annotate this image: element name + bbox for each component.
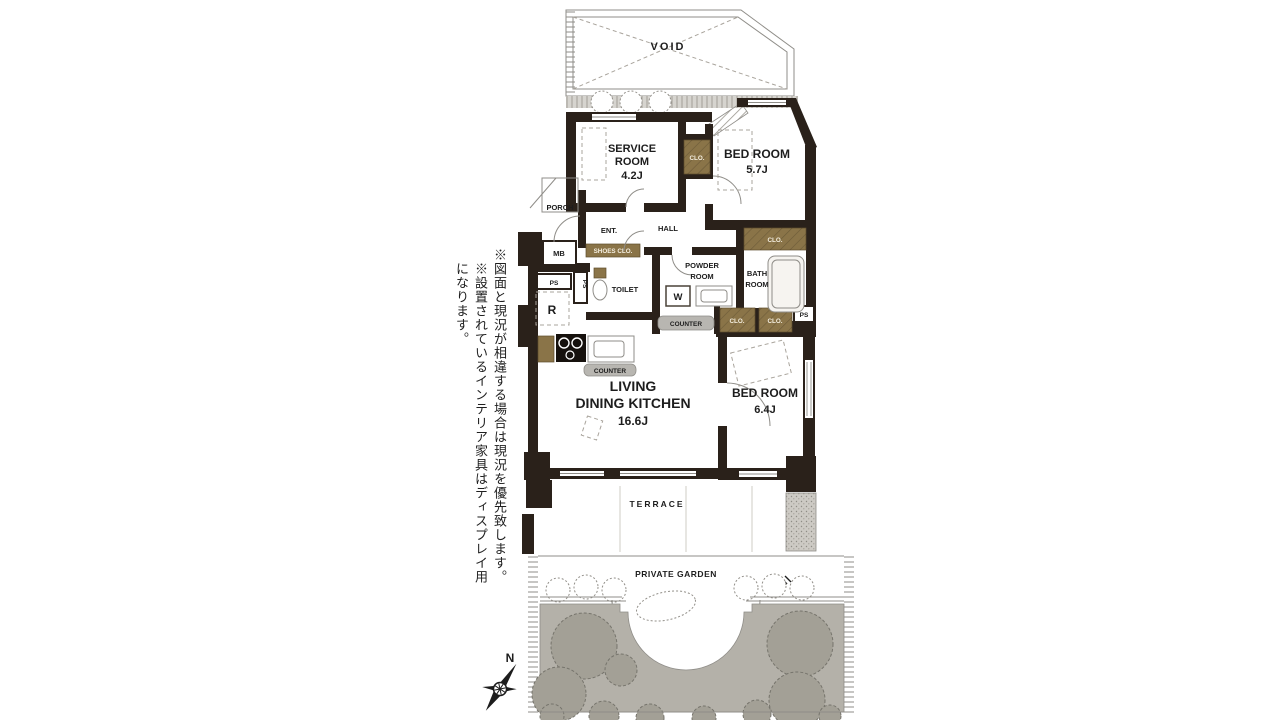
powder-room-label-2: ROOM — [690, 272, 713, 281]
refrigerator-label: R — [548, 303, 557, 317]
bath-room-label-2: ROOM — [745, 280, 768, 289]
wall-service-top — [566, 112, 712, 122]
wall-porch-right — [578, 190, 586, 248]
service-room-name-1: SERVICE — [608, 143, 656, 155]
wall-bed64-top — [716, 332, 816, 337]
ent-label: ENT. — [601, 226, 617, 235]
void-diagonal-2 — [573, 17, 738, 89]
wall-entry-block — [518, 232, 542, 266]
kitchen-stove — [556, 334, 586, 362]
disclaimer-notes: ※図面と現況が相違する場合は現況を優先致します。 ※設置されているインテリア家具… — [452, 248, 509, 588]
bath-tub — [768, 256, 804, 312]
counters: COUNTER COUNTER — [584, 316, 714, 376]
planter-bush — [591, 91, 613, 113]
private-garden-label: PRIVATE GARDEN — [635, 569, 717, 579]
planter-bush — [649, 91, 671, 113]
pipe-space-c-label: PS — [800, 312, 809, 319]
disclaimer-note-1: ※図面と現況が相違する場合は現況を優先致します。 — [490, 248, 509, 588]
wall-clo-divider — [755, 308, 759, 332]
void-area: VOID — [566, 10, 798, 113]
wall-powder-top-right — [692, 247, 736, 255]
bed-room-64-size: 6.4J — [754, 404, 775, 416]
terrace-label: TERRACE — [629, 499, 684, 509]
meter-box-label: MB — [553, 249, 565, 258]
service-room-size: 4.2J — [621, 170, 642, 182]
planter-bush — [620, 91, 642, 113]
disclaimer-note-2: ※設置されているインテリア家具はディスプレイ用になります。 — [452, 248, 490, 588]
garden-bush — [546, 578, 570, 602]
furniture-service — [582, 128, 606, 180]
bed-room-57-size: 5.7J — [746, 164, 767, 176]
wall-bed57-ne-diagonal — [787, 98, 817, 152]
washer-label: W — [674, 292, 683, 303]
wall-ldk-bed64-lower — [718, 426, 727, 480]
wall-powder-top-left — [660, 247, 672, 255]
door-arc-entry — [554, 216, 580, 242]
furniture-ldk — [581, 416, 602, 440]
void-left-hatch — [566, 10, 575, 96]
ldk-name-2: DINING KITCHEN — [575, 395, 690, 411]
terrace: TERRACE — [538, 486, 844, 556]
floor-plan-page: ※図面と現況が相違する場合は現況を優先致します。 ※設置されているインテリア家具… — [0, 0, 1280, 720]
wall-ldk-bed64-upper — [718, 337, 727, 383]
bath-room-label-1: BATH — [747, 269, 767, 278]
void-diagonal-1 — [573, 17, 787, 89]
powder-counter-label: COUNTER — [670, 321, 702, 328]
powder-sink-bowl — [701, 290, 727, 302]
toilet-bowl — [593, 280, 607, 300]
wall-service-left — [566, 112, 576, 212]
kitchen-sink-bowl — [594, 341, 624, 357]
powder-room-label-1: POWDER — [685, 261, 719, 270]
wall-counter-clo — [714, 306, 720, 334]
closet-bed64-left-label: CLO. — [729, 318, 744, 325]
toilet-tank — [594, 268, 606, 278]
garden-tree — [767, 611, 833, 677]
wall-toilet-bottom — [586, 312, 660, 320]
compass-north-label: N — [506, 651, 515, 665]
garden-center-plant — [634, 586, 699, 626]
door-arc-service — [626, 189, 644, 207]
compass-rose — [472, 655, 528, 718]
void-label: VOID — [651, 41, 686, 53]
toilet-label: TOILET — [612, 285, 639, 294]
garden-tree — [605, 654, 637, 686]
pipe-space-b-label: PS — [581, 280, 588, 289]
wall-toilet-powder-divider — [652, 247, 660, 318]
wall-sw-block — [524, 452, 550, 480]
wall-powder-bath-divider — [736, 226, 744, 318]
wall-se-block — [786, 456, 816, 492]
closet-bed64-right-label: CLO. — [767, 318, 782, 325]
ldk-size: 16.6J — [618, 414, 648, 428]
terrace-side-planter — [786, 493, 816, 551]
wall-terrace-block1 — [526, 480, 552, 508]
garden-bush — [762, 574, 786, 598]
garden-bush — [602, 578, 626, 602]
closet-bed57-label: CLO. — [767, 237, 782, 244]
kitchen-side-cabinet — [538, 336, 554, 362]
bed-room-57-name: BED ROOM — [724, 147, 790, 161]
shoes-closet-label: SHOES CLO. — [594, 248, 633, 255]
floor-plan-drawing: VOID — [0, 0, 1280, 720]
service-room-name-2: ROOM — [615, 156, 649, 168]
wall-left-bump — [518, 305, 530, 347]
garden-bush — [790, 576, 814, 600]
private-garden: PRIVATE GARDEN — [528, 556, 854, 720]
garden-bush — [734, 576, 758, 600]
garden-bush — [574, 575, 598, 599]
bed-room-64-name: BED ROOM — [732, 386, 798, 400]
window-bed64-right — [805, 360, 813, 418]
ldk-name-1: LIVING — [610, 378, 657, 394]
closet-service-label: CLO. — [689, 155, 704, 162]
pipe-space-a-label: PS — [550, 280, 559, 287]
furniture-bed64 — [731, 340, 792, 386]
garden-fence-right — [844, 556, 854, 714]
kitchen-sink-counter — [588, 336, 634, 362]
wall-terrace-block2 — [522, 514, 534, 554]
porch-label: PORCH — [546, 203, 573, 212]
kitchen-counter-label: COUNTER — [594, 368, 626, 375]
compass: N — [472, 651, 528, 718]
hall-label: HALL — [658, 224, 678, 233]
